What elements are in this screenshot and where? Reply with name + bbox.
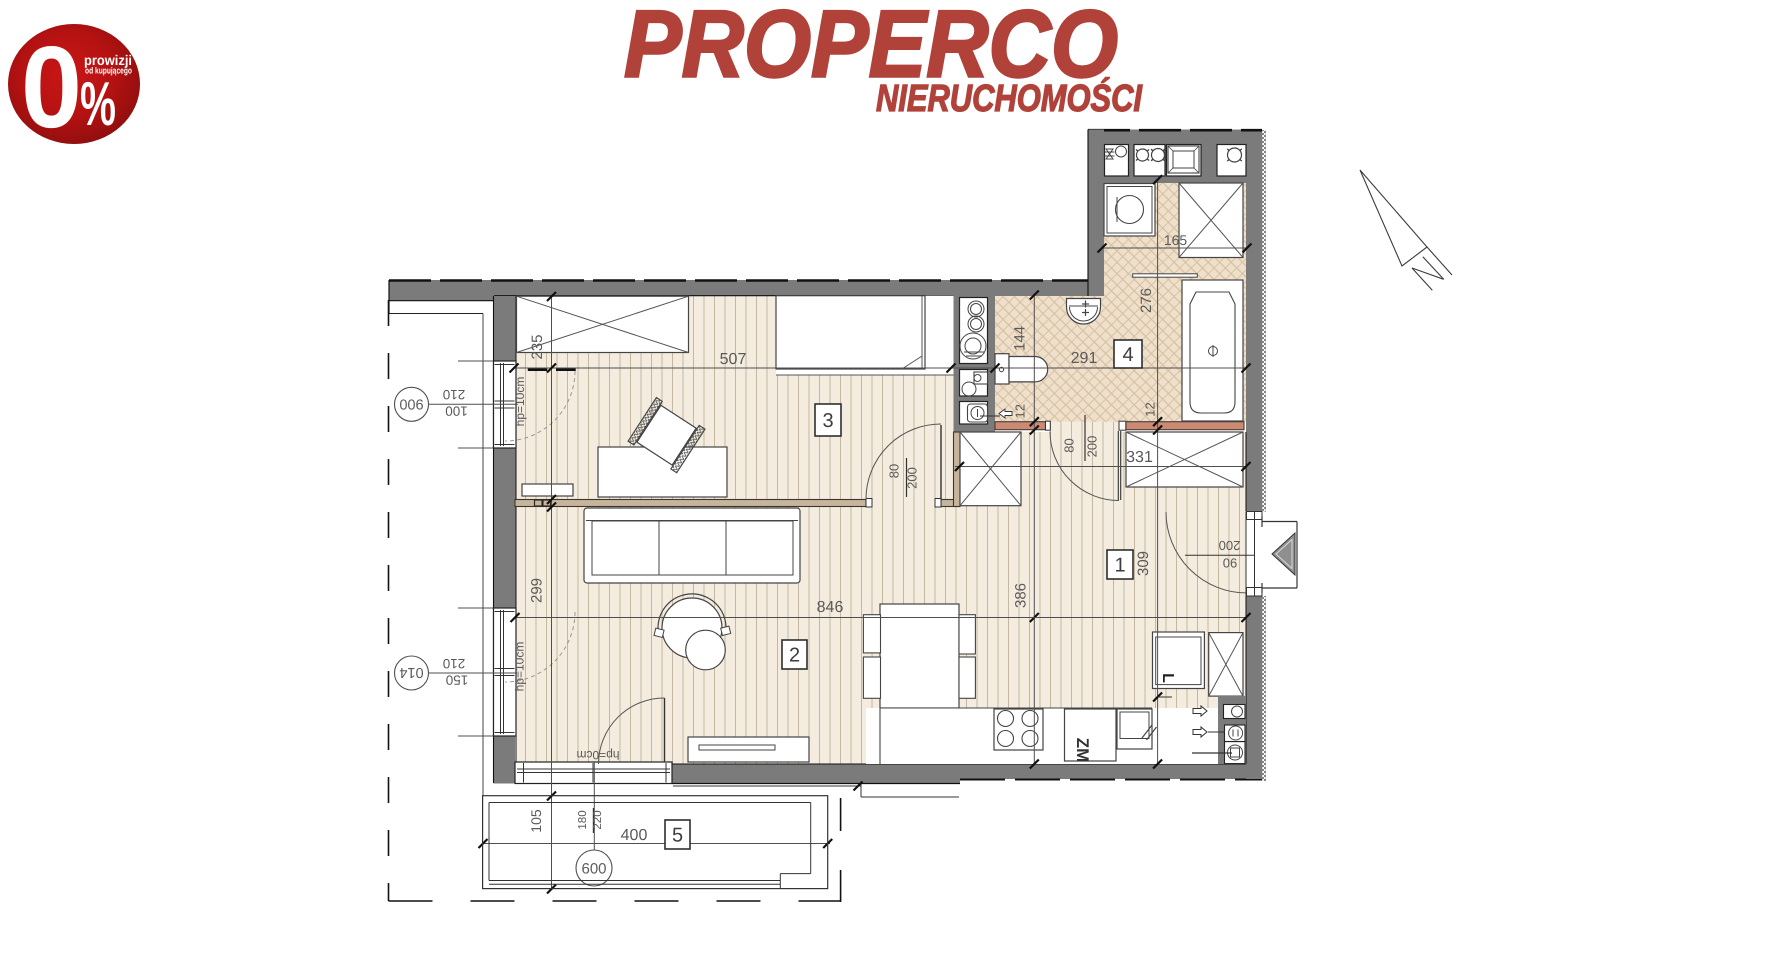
svg-text:309: 309: [1135, 551, 1152, 576]
svg-text:4: 4: [1122, 344, 1133, 366]
svg-text:331: 331: [1126, 449, 1153, 466]
svg-text:276: 276: [1138, 288, 1155, 313]
svg-text:846: 846: [817, 599, 844, 616]
svg-text:210: 210: [443, 387, 466, 402]
svg-text:200: 200: [1219, 538, 1241, 553]
svg-text:400: 400: [621, 827, 648, 844]
svg-text:165: 165: [1164, 232, 1188, 248]
svg-text:12: 12: [1012, 404, 1027, 418]
svg-text:507: 507: [720, 351, 747, 368]
svg-text:5: 5: [672, 825, 683, 847]
svg-text:900: 900: [399, 395, 423, 411]
svg-text:299: 299: [529, 578, 546, 603]
svg-text:200: 200: [905, 467, 920, 489]
svg-text:014: 014: [399, 664, 423, 680]
svg-text:210: 210: [443, 656, 466, 671]
svg-text:150: 150: [446, 672, 469, 687]
svg-text:12: 12: [1143, 402, 1158, 416]
svg-text:2: 2: [789, 645, 800, 667]
svg-text:291: 291: [1071, 350, 1098, 367]
svg-text:hp=0cm: hp=0cm: [576, 748, 619, 762]
svg-text:ZM: ZM: [1073, 738, 1092, 763]
svg-text:0: 0: [21, 22, 82, 152]
svg-text:80: 80: [887, 464, 902, 478]
svg-text:hp=10cm: hp=10cm: [513, 642, 527, 692]
svg-text:hp=10cm: hp=10cm: [513, 377, 527, 427]
svg-text:105: 105: [528, 809, 544, 833]
svg-text:3: 3: [822, 410, 833, 432]
svg-text:NIERUCHOMOŚCI: NIERUCHOMOŚCI: [876, 77, 1143, 120]
svg-text:386: 386: [1013, 583, 1030, 608]
svg-text:235: 235: [529, 334, 546, 359]
svg-text:100: 100: [445, 403, 468, 418]
svg-text:220: 220: [592, 810, 604, 829]
svg-text:200: 200: [1085, 436, 1100, 458]
svg-text:80: 80: [1062, 438, 1077, 452]
svg-text:144: 144: [1012, 326, 1029, 351]
svg-text:od kupującego: od kupującego: [85, 66, 132, 76]
svg-text:180: 180: [577, 810, 589, 829]
svg-text:90: 90: [1223, 556, 1237, 571]
svg-text:600: 600: [581, 861, 606, 878]
svg-text:%: %: [80, 70, 116, 139]
svg-text:L: L: [1159, 673, 1176, 683]
svg-text:1: 1: [1114, 555, 1125, 577]
